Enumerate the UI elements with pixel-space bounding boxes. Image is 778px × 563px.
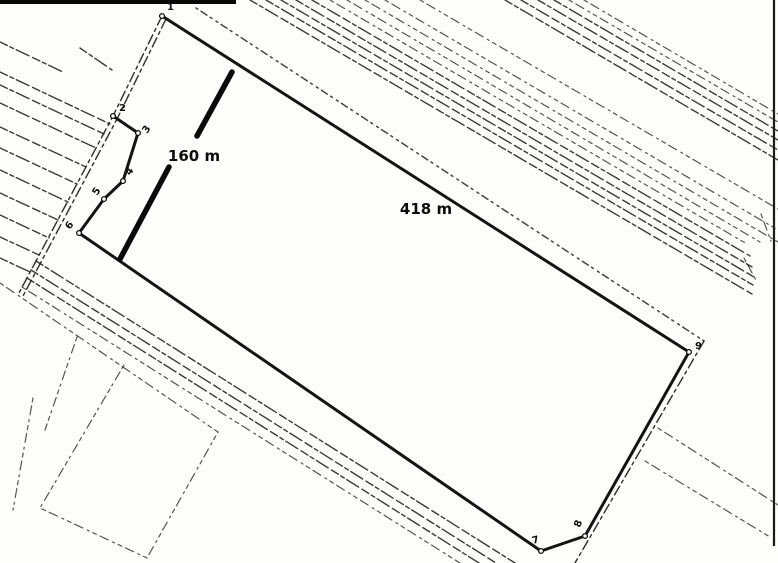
- field-line: [0, 127, 86, 167]
- parcel-boundary: [79, 16, 689, 551]
- road-lower-line: [27, 278, 479, 563]
- road-lower-line: [36, 261, 515, 563]
- dimension-label: 160 m: [168, 147, 220, 165]
- survey-map-page: 123456789160 m418 m: [0, 0, 778, 563]
- vertex-marker-3: [136, 131, 141, 136]
- field-line: [0, 193, 58, 220]
- road-branch-1: [658, 428, 778, 505]
- vertex-marker-7: [539, 549, 544, 554]
- field-boundary-short: [45, 337, 77, 430]
- field-line: [0, 42, 63, 72]
- vertex-marker-2: [111, 114, 116, 119]
- vertex-label-1: 1: [167, 2, 174, 13]
- vertex-label-5: 5: [90, 186, 103, 198]
- road-corner-line: [538, 0, 778, 140]
- road-upper-line: [330, 0, 747, 244]
- dimension-bar-160m-upper: [197, 72, 232, 136]
- field-line: [80, 48, 112, 70]
- vertex-label-2: 2: [119, 103, 126, 114]
- road-parallel-right: [575, 341, 704, 563]
- vertex-marker-4: [121, 179, 126, 184]
- field-line: [0, 258, 30, 272]
- vertex-label-3: 3: [140, 124, 153, 136]
- road-corner-line: [569, 0, 778, 122]
- vertex-label-9: 9: [695, 341, 702, 352]
- field-line: [0, 215, 49, 238]
- road-corner-line: [521, 0, 778, 150]
- vertex-label-7: 7: [531, 534, 541, 546]
- road-corner-line: [584, 0, 778, 114]
- road-upper-end-tick: [761, 214, 771, 241]
- vertex-marker-1: [160, 14, 165, 19]
- vertex-label-8: 8: [572, 519, 585, 529]
- vertex-marker-8: [583, 534, 588, 539]
- field-boundary-short: [13, 398, 33, 510]
- survey-canvas: 123456789160 m418 m: [0, 0, 778, 563]
- road-upper-line: [296, 0, 752, 267]
- road-upper-line: [266, 0, 753, 285]
- vertex-marker-5: [102, 197, 107, 202]
- road-left-edge-b: [23, 19, 166, 296]
- road-branch-2: [645, 461, 770, 537]
- road-lower-line: [22, 287, 460, 563]
- vertex-marker-9: [687, 350, 692, 355]
- field-line: [0, 103, 96, 148]
- field-line: [0, 72, 110, 124]
- dimension-bar-160m-lower: [120, 167, 169, 259]
- road-upper-end-tick: [744, 258, 757, 282]
- vertex-label-6: 6: [63, 220, 76, 232]
- dimension-label: 418 m: [400, 200, 452, 218]
- road-left-edge-a: [19, 16, 162, 293]
- field-line: [0, 237, 39, 255]
- road-corner-line: [554, 0, 778, 131]
- field-line: [0, 148, 77, 184]
- vertex-marker-6: [77, 231, 82, 236]
- road-lower-line: [31, 270, 496, 563]
- road-upper-line: [250, 0, 752, 294]
